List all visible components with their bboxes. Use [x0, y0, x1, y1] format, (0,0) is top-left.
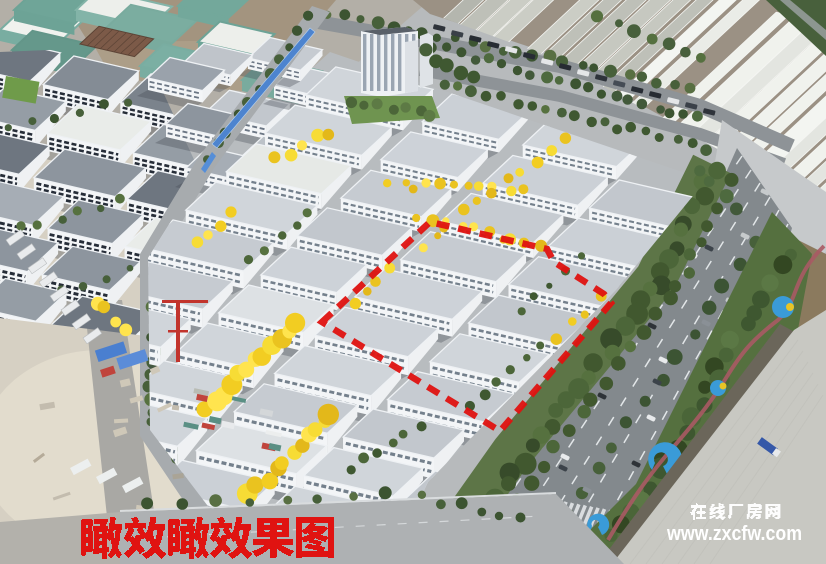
svg-text:www.zxcfw.com: www.zxcfw.com [666, 523, 802, 545]
